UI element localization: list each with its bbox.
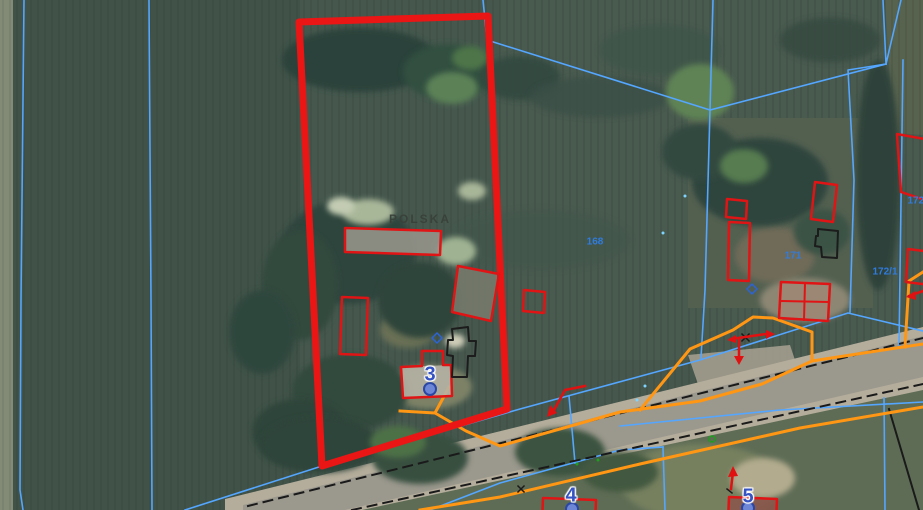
map-viewport[interactable]: POLSKA168171172/1172/2345 [0, 0, 923, 510]
blossom-tree [436, 237, 476, 265]
address-point-dot [566, 503, 578, 510]
building-ridge-line [804, 283, 805, 320]
cyan-point [684, 195, 687, 198]
green-marker [576, 463, 579, 466]
blossom-tree [327, 197, 355, 215]
tree [229, 290, 295, 374]
sandy-bright [731, 458, 795, 498]
tree [378, 262, 462, 338]
tree [452, 46, 488, 70]
cyan-point [636, 399, 639, 402]
tree [426, 72, 478, 104]
tree [666, 64, 734, 120]
cyan-point [662, 232, 665, 235]
green-marker [597, 459, 600, 462]
tree [720, 149, 768, 183]
tree [780, 18, 880, 62]
tree-lane [856, 60, 900, 290]
tree-shadow [530, 77, 670, 117]
map-canvas [0, 0, 923, 510]
blossom-tree [458, 182, 486, 200]
address-point-dot [742, 502, 754, 510]
address-point-dot [424, 383, 436, 395]
terrain-layer [0, 0, 923, 510]
field-shading [450, 210, 630, 270]
building-roof [345, 228, 441, 255]
cyan-point [644, 385, 647, 388]
